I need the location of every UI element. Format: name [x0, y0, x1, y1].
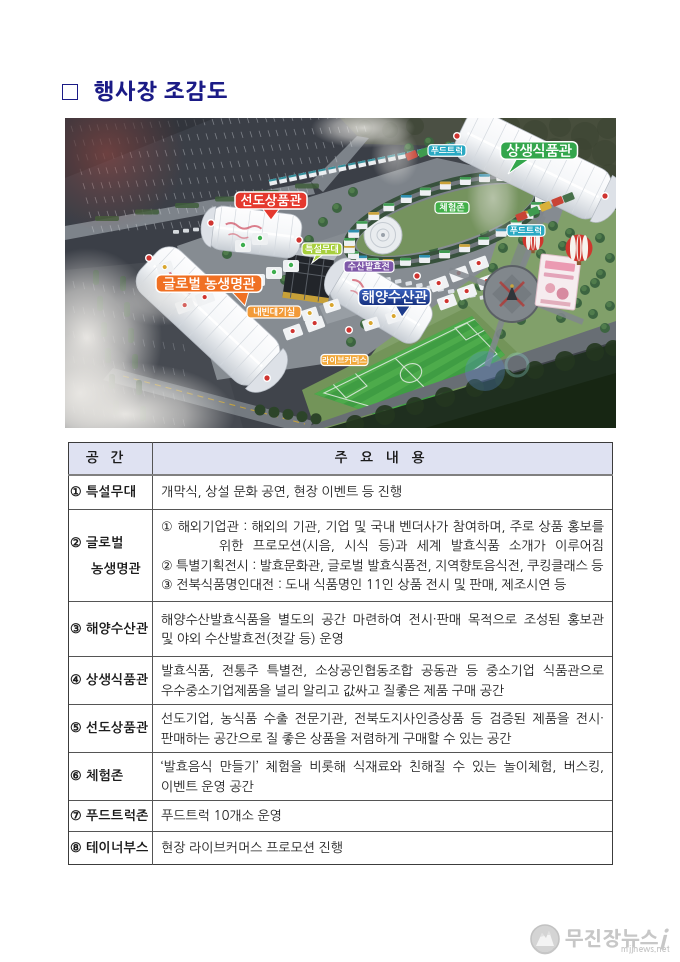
svg-text:상생식품관: 상생식품관 — [506, 144, 572, 159]
svg-text:푸드트럭: 푸드트럭 — [510, 226, 542, 236]
svg-text:내빈대기실: 내빈대기실 — [253, 307, 295, 317]
svg-text:라이브커머스: 라이브커머스 — [322, 356, 368, 365]
svg-text:체험존: 체험존 — [439, 203, 465, 213]
svg-text:수산발효전: 수산발효전 — [348, 262, 390, 272]
svg-text:해양수산관: 해양수산관 — [362, 289, 428, 305]
svg-text:글로벌 농생명관: 글로벌 농생명관 — [163, 276, 256, 291]
svg-text:특설무대: 특설무대 — [305, 244, 339, 254]
svg-text:푸드트럭: 푸드트럭 — [431, 146, 463, 156]
svg-text:선도상품관: 선도상품관 — [240, 193, 302, 207]
